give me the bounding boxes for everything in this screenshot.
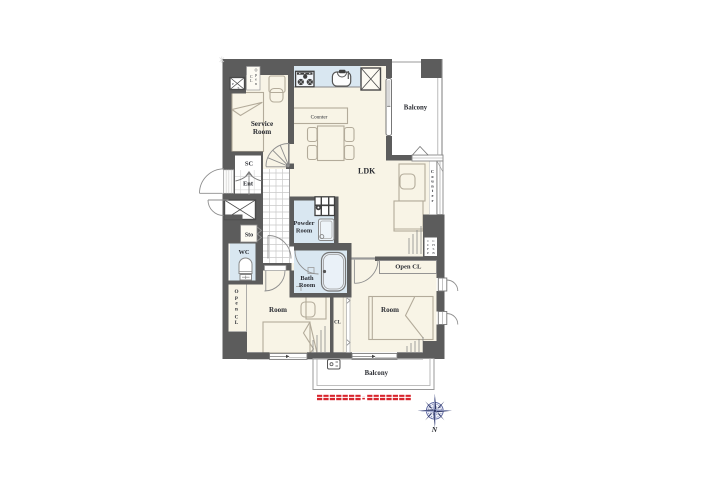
svg-text:Room: Room (299, 282, 316, 289)
svg-text:Room: Room (296, 228, 313, 235)
svg-text:Room: Room (381, 306, 399, 314)
svg-text:Balcony: Balcony (365, 370, 389, 377)
svg-text:LDK: LDK (358, 166, 376, 175)
svg-text:Powder: Powder (294, 220, 315, 227)
svg-text:CL: CL (334, 320, 341, 325)
svg-text:N: N (431, 425, 438, 434)
svg-text:P: P (232, 82, 234, 86)
svg-text:Service: Service (251, 120, 273, 128)
svg-text:Bath: Bath (300, 275, 314, 282)
svg-text:WC: WC (238, 249, 249, 256)
svg-text:SC: SC (245, 160, 254, 167)
svg-text:Ent: Ent (243, 181, 254, 188)
svg-text:Room: Room (253, 128, 271, 136)
svg-text:Sto: Sto (245, 233, 253, 239)
svg-text:Room: Room (269, 306, 287, 314)
svg-text:S: S (238, 86, 240, 90)
svg-text:Balcony: Balcony (404, 104, 428, 111)
svg-text:Open CL: Open CL (395, 264, 422, 271)
svg-text:Counter: Counter (311, 114, 328, 120)
